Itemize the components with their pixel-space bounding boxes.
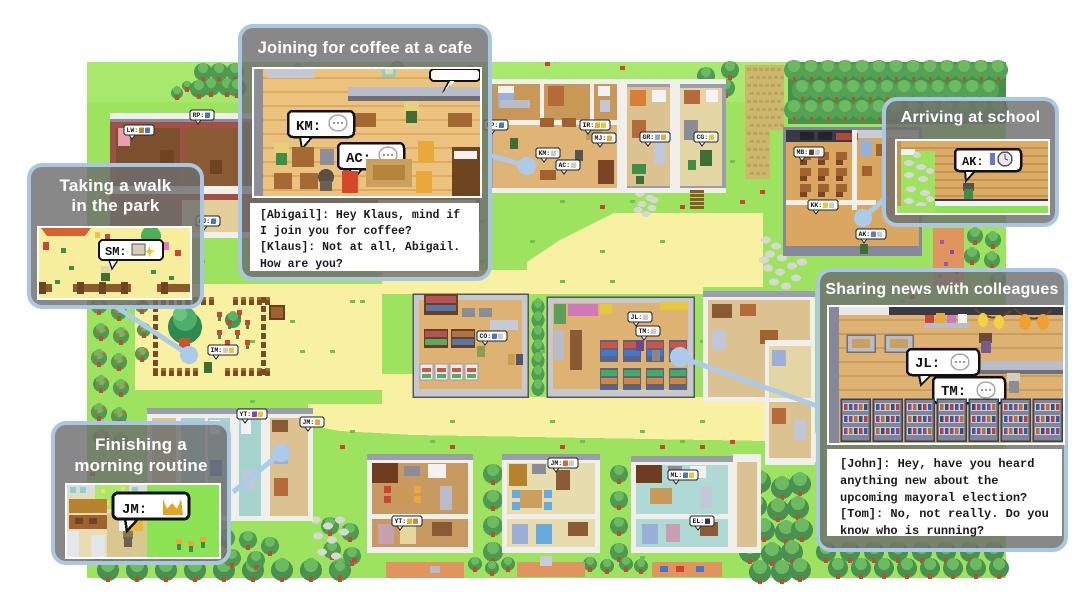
- svg-text:AK:: AK:: [962, 155, 984, 169]
- svg-text:KM:: KM:: [539, 150, 551, 157]
- svg-text:AC:: AC:: [559, 162, 571, 169]
- svg-text:YT:: YT:: [240, 411, 252, 418]
- svg-text:MB:: MB:: [797, 149, 809, 156]
- svg-text:KM:: KM:: [296, 119, 321, 135]
- svg-text:IR:: IR:: [583, 122, 595, 129]
- svg-text:SM:: SM:: [105, 245, 127, 259]
- svg-text:JL:: JL:: [631, 314, 643, 321]
- svg-text:JL:: JL:: [915, 356, 940, 372]
- svg-text:IM:: IM:: [211, 347, 223, 354]
- svg-text:YT:: YT:: [395, 518, 407, 525]
- svg-text:TM:: TM:: [639, 328, 651, 335]
- svg-text:CG:: CG:: [697, 134, 709, 141]
- svg-text:JM:: JM:: [551, 460, 563, 467]
- svg-text:AK:: AK:: [859, 231, 871, 238]
- svg-text:TM:: TM:: [941, 384, 966, 400]
- svg-text:CO:: CO:: [480, 333, 492, 340]
- svg-text:JM:: JM:: [303, 419, 315, 426]
- svg-text:KK:: KK:: [811, 202, 823, 209]
- svg-text:GR:: GR:: [643, 134, 655, 141]
- svg-text:EL:: EL:: [693, 518, 705, 525]
- svg-text:JM:: JM:: [122, 502, 147, 518]
- svg-text:LW:: LW:: [127, 127, 139, 134]
- svg-text:RP:: RP:: [193, 112, 205, 119]
- svg-text:MJ:: MJ:: [595, 135, 607, 142]
- svg-text:ML:: ML:: [671, 472, 683, 479]
